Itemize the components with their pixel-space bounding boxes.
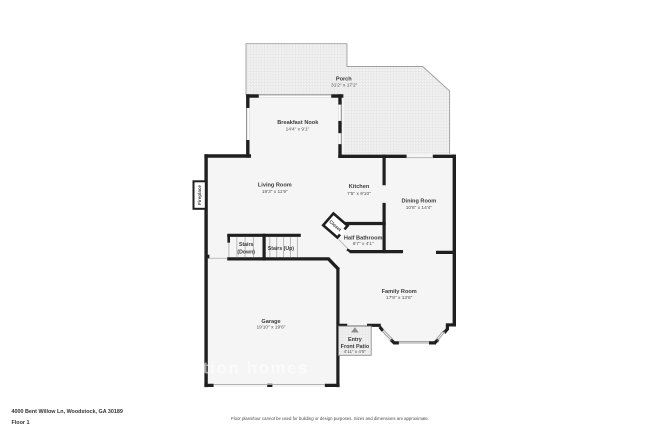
svg-text:19'3" x 11'9": 19'3" x 11'9" xyxy=(262,189,288,195)
svg-text:Floor 1: Floor 1 xyxy=(12,420,30,426)
svg-text:Porch: Porch xyxy=(336,76,352,82)
svg-text:4000 Bent Willow Ln, Woodstock: 4000 Bent Willow Ln, Woodstock, GA 30189 xyxy=(12,409,123,415)
svg-text:Fireplace: Fireplace xyxy=(197,185,202,205)
svg-text:Family Room: Family Room xyxy=(382,289,417,295)
svg-text:19'10" x 19'6": 19'10" x 19'6" xyxy=(257,324,286,330)
svg-text:(Down): (Down) xyxy=(237,249,255,255)
svg-text:14'4" x 9'1": 14'4" x 9'1" xyxy=(286,126,310,132)
svg-text:Garage: Garage xyxy=(261,319,280,325)
svg-text:Breakfast Nook: Breakfast Nook xyxy=(277,120,319,126)
svg-text:Stairs (Up): Stairs (Up) xyxy=(268,246,295,252)
svg-text:Kitchen: Kitchen xyxy=(349,184,370,190)
svg-text:4'11" x 4'5": 4'11" x 4'5" xyxy=(344,349,367,354)
svg-text:6'7" x 4'1": 6'7" x 4'1" xyxy=(353,241,374,247)
svg-text:tion homes: tion homes xyxy=(203,360,309,378)
svg-text:7'5" x 9'10": 7'5" x 9'10" xyxy=(347,191,371,197)
svg-text:10'6" x 14'4": 10'6" x 14'4" xyxy=(406,205,433,211)
svg-text:Floor plans/tour cannot be use: Floor plans/tour cannot be used for buil… xyxy=(231,416,429,421)
svg-text:Entry: Entry xyxy=(348,337,362,343)
svg-text:31'2" x 17'2": 31'2" x 17'2" xyxy=(331,83,358,89)
svg-text:Stairs: Stairs xyxy=(239,242,254,248)
svg-text:Living Room: Living Room xyxy=(258,182,292,188)
svg-text:Half Bathroom: Half Bathroom xyxy=(344,235,383,241)
svg-text:Dining Room: Dining Room xyxy=(401,199,436,205)
svg-text:17'8" x 13'6": 17'8" x 13'6" xyxy=(386,295,413,301)
